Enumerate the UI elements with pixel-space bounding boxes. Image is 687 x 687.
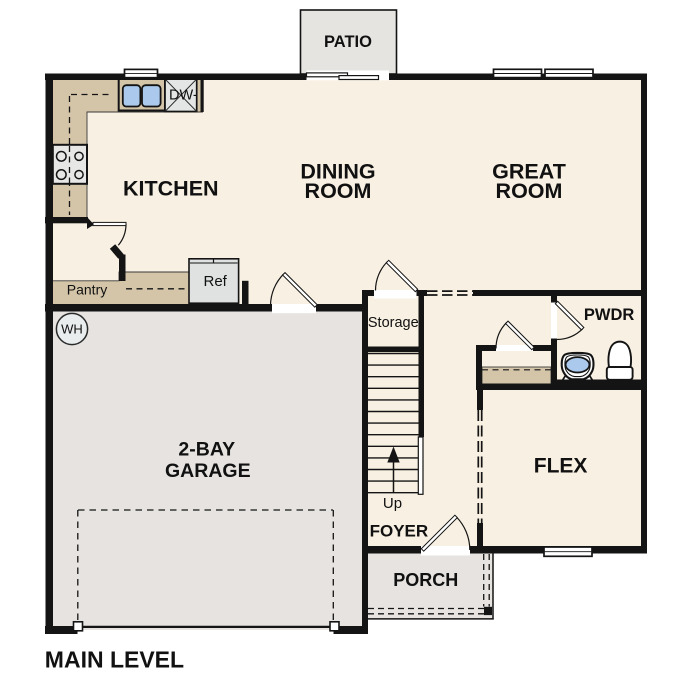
svg-text:MAIN LEVEL: MAIN LEVEL <box>45 646 184 672</box>
svg-text:DW-: DW- <box>169 88 198 104</box>
svg-text:Ref: Ref <box>204 273 228 290</box>
svg-text:ROOM: ROOM <box>496 179 563 203</box>
svg-text:ROOM: ROOM <box>305 179 372 203</box>
svg-text:Up: Up <box>383 495 402 512</box>
svg-text:WH: WH <box>61 322 83 337</box>
svg-text:PWDR: PWDR <box>584 306 634 324</box>
svg-text:FLEX: FLEX <box>534 455 588 478</box>
svg-text:FOYER: FOYER <box>370 521 429 540</box>
svg-text:2-BAY: 2-BAY <box>178 439 235 461</box>
svg-text:PORCH: PORCH <box>393 570 458 590</box>
svg-text:PATIO: PATIO <box>324 33 372 51</box>
svg-text:KITCHEN: KITCHEN <box>123 176 219 200</box>
svg-text:Storage: Storage <box>368 315 419 331</box>
svg-text:Pantry: Pantry <box>67 282 107 298</box>
svg-text:GARAGE: GARAGE <box>165 460 251 482</box>
